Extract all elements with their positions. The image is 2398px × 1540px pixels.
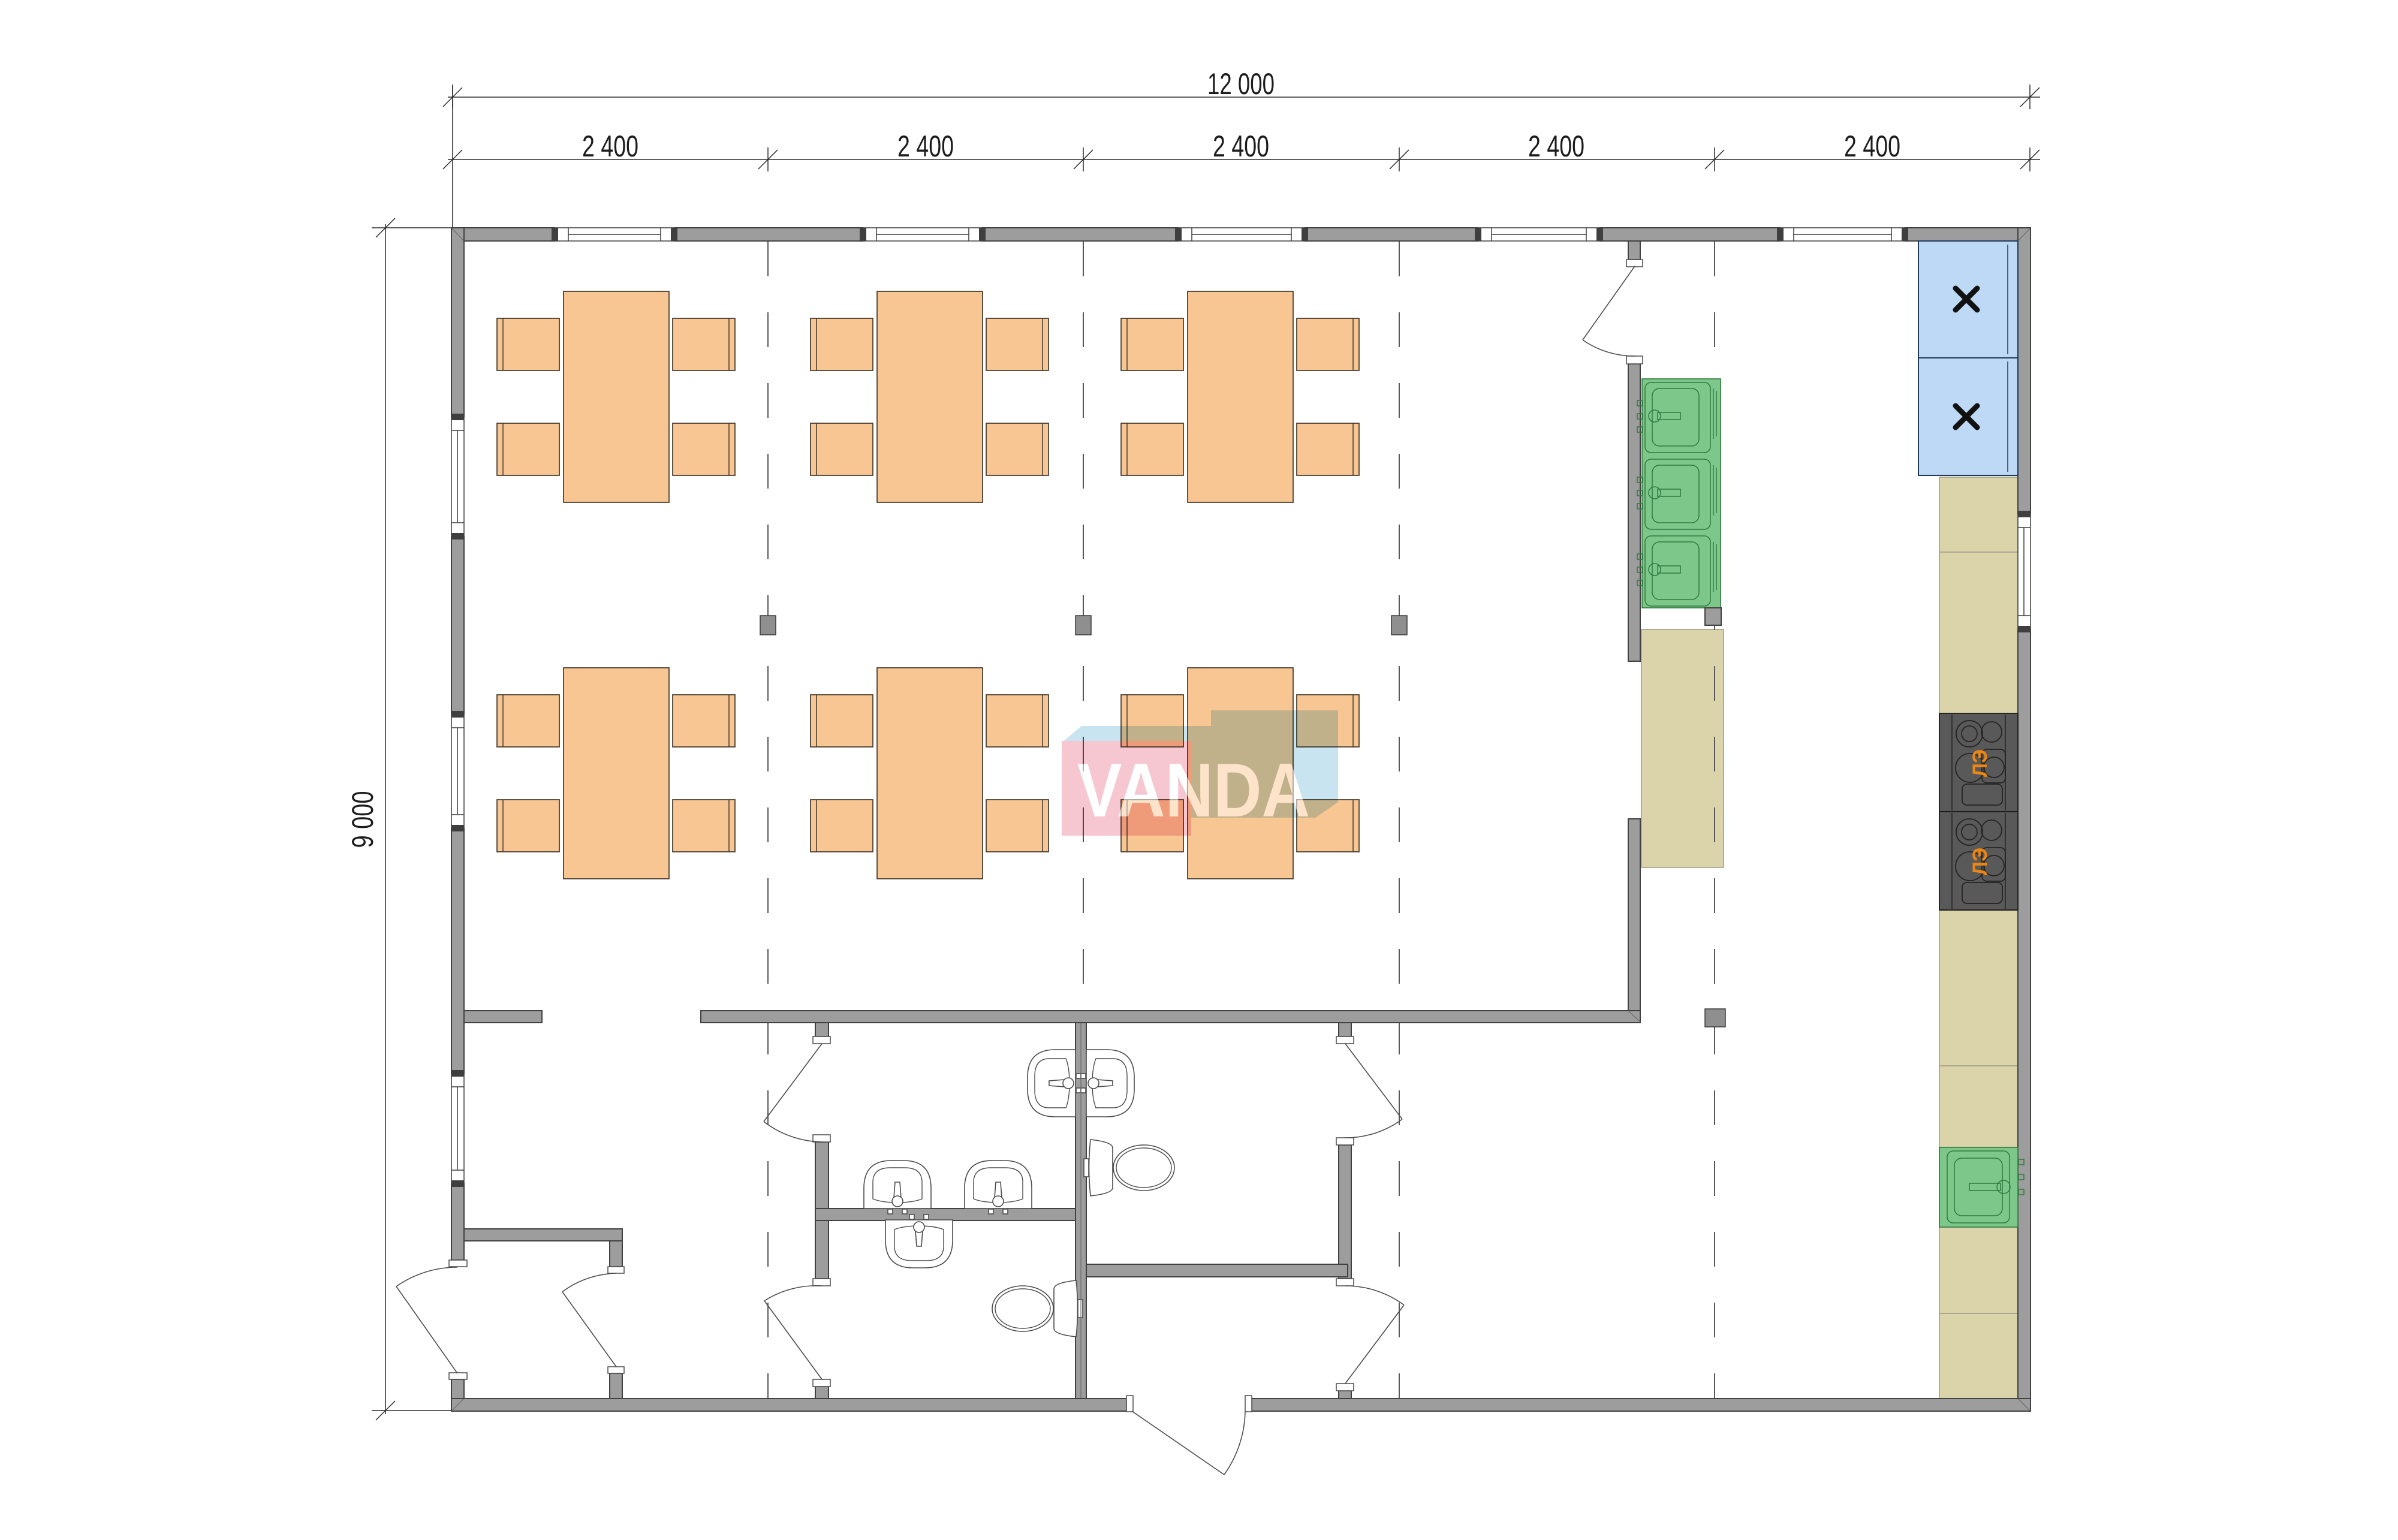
svg-text:2 400: 2 400 (897, 129, 954, 163)
svg-text:2 400: 2 400 (1528, 129, 1584, 163)
svg-text:VANDA: VANDA (1077, 748, 1310, 833)
svg-text:2 400: 2 400 (582, 129, 638, 163)
svg-text:9 000: 9 000 (346, 791, 379, 848)
svg-text:2 400: 2 400 (1844, 129, 1900, 163)
svg-text:12 000: 12 000 (1207, 67, 1275, 101)
svg-text:2 400: 2 400 (1213, 129, 1269, 163)
